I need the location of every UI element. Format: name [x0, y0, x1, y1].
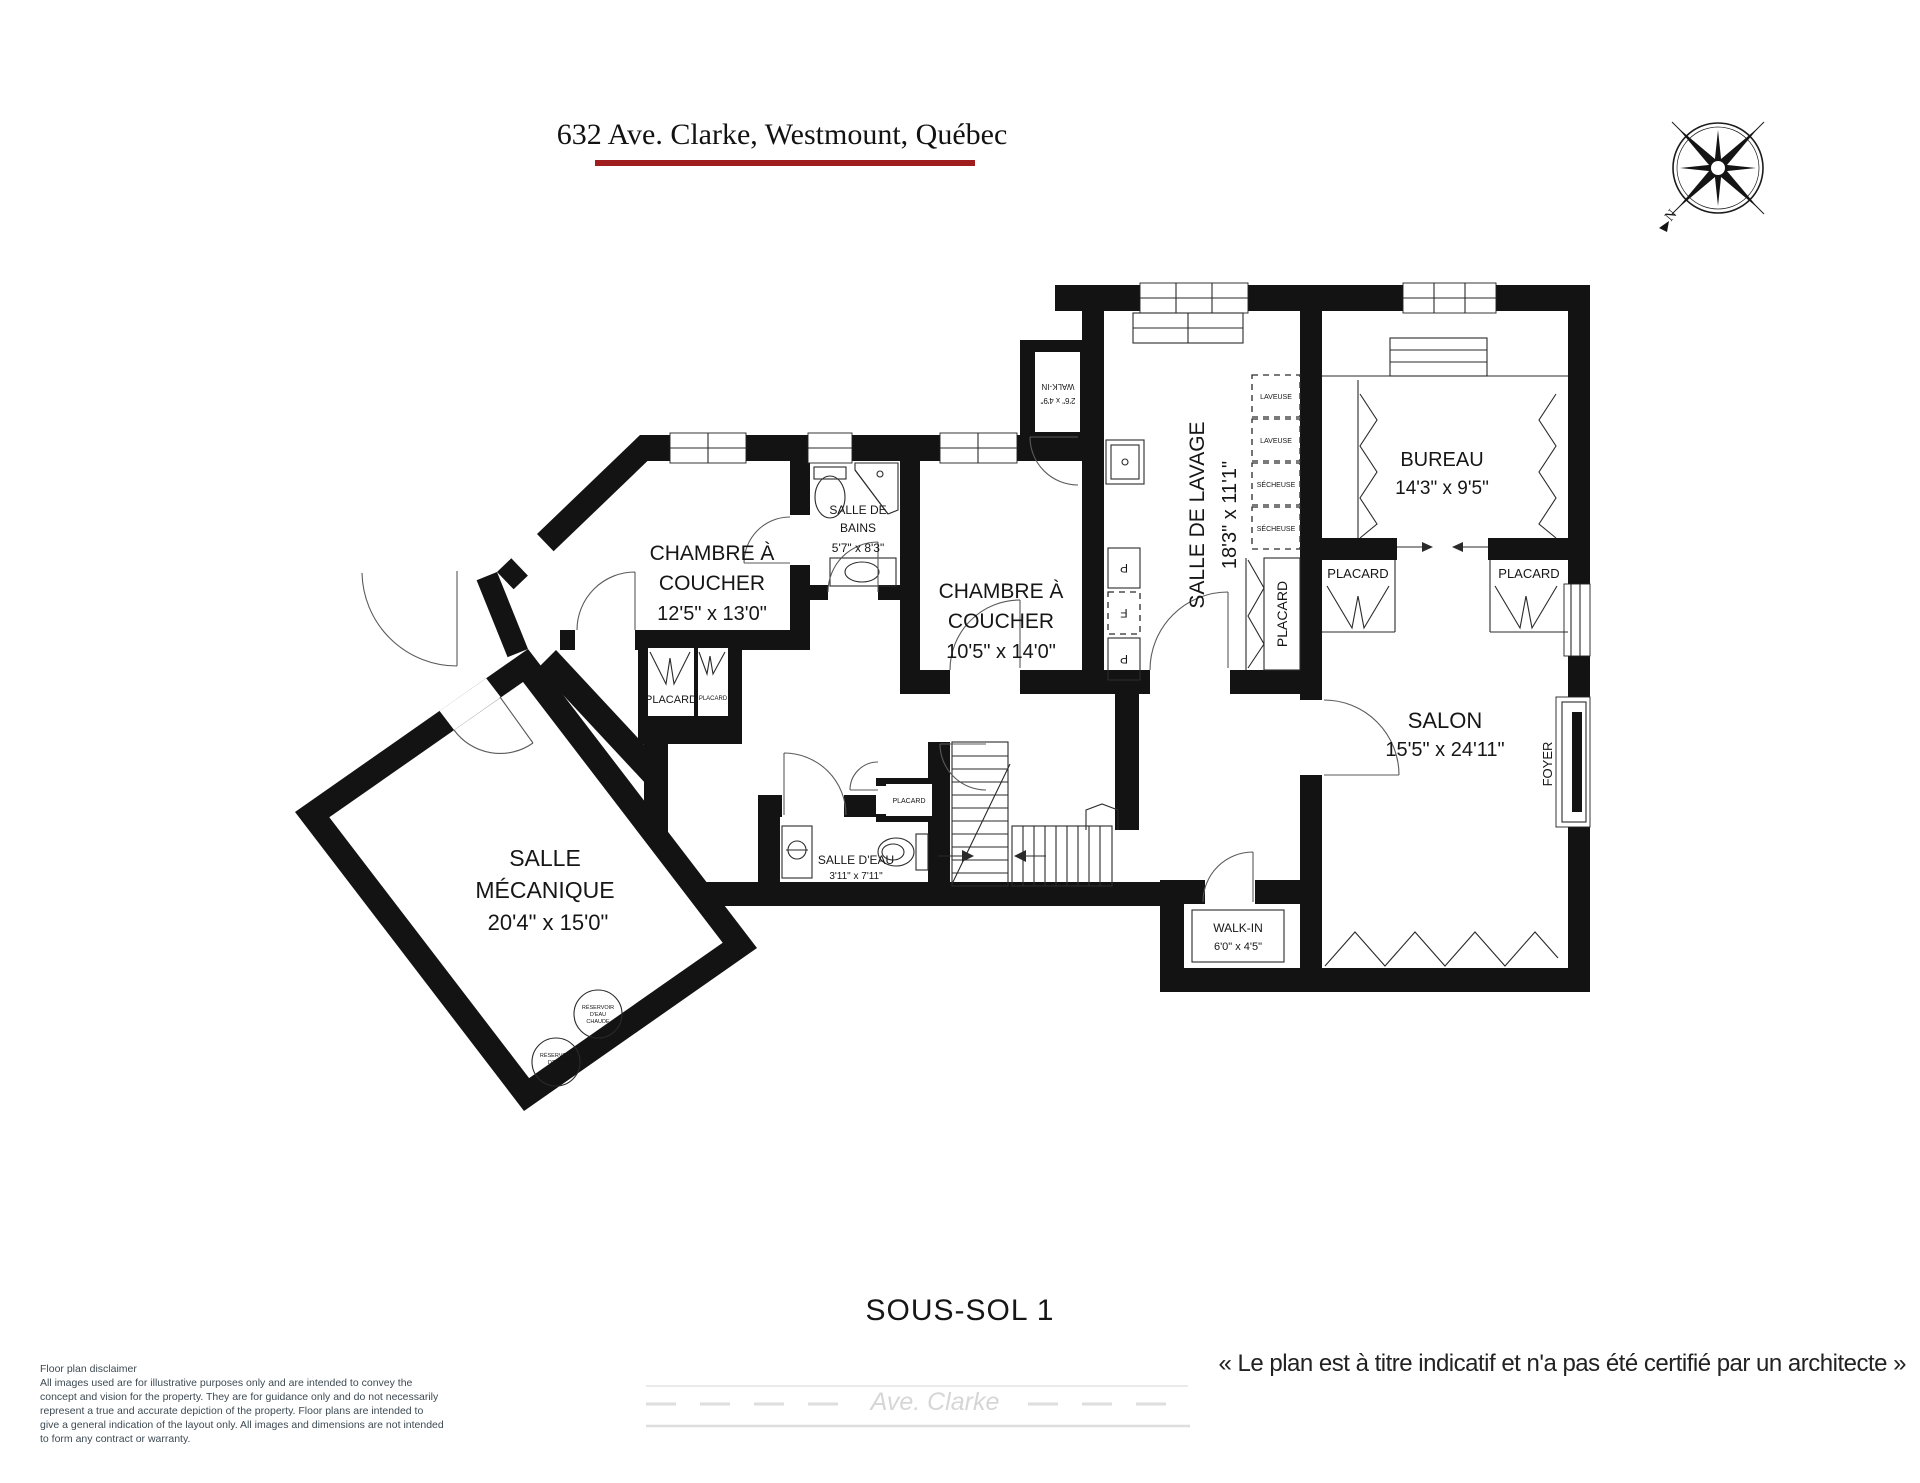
label-secheuse-2: SÉCHEUSE — [1257, 524, 1296, 533]
salon-radiator-zigzag — [1325, 932, 1558, 966]
label-laveuse-1: LAVEUSE — [1260, 394, 1292, 401]
street-label: Ave. Clarke — [700, 1388, 1170, 1417]
laundry-sink — [1106, 440, 1144, 484]
room-walkin-small-dims: 2'6" x 4'9" — [1040, 396, 1075, 405]
label-placard-salon-right: PLACARD — [1498, 566, 1559, 581]
room-salon-name: SALON — [1408, 708, 1483, 733]
room-bains-name1: SALLE DE — [829, 503, 886, 517]
room-mecanique-name2: MÉCANIQUE — [475, 877, 614, 903]
label-placard-bed1: PLACARD — [645, 694, 697, 706]
tank1-line1: RÉSERVOIR — [582, 1004, 614, 1011]
walkin-interior-line — [1192, 910, 1284, 962]
tank1-line2: D'EAU — [590, 1012, 606, 1018]
label-p2: P — [1120, 652, 1128, 666]
appliance-boxes — [1252, 375, 1300, 549]
room-mecanique-dims: 20'4" x 15'0" — [488, 910, 609, 935]
tank1-line3: CHAUDE — [586, 1019, 610, 1025]
room-lavage-dims: 18'3" x 11'1" — [1219, 461, 1241, 569]
label-placard-salon-left: PLACARD — [1327, 566, 1388, 581]
bureau-drape-left — [1358, 380, 1377, 538]
room-bureau-name: BUREAU — [1400, 449, 1483, 471]
placard-strip-laundry — [1246, 558, 1300, 670]
label-placard-laundry: PLACARD — [1274, 581, 1290, 647]
tank2-line3: CHAUDE — [544, 1067, 568, 1073]
floor-plan: CHAMBRE À COUCHER 12'5" x 13'0" SALLE DE… — [0, 0, 1920, 1483]
room-bains-dims: 5'7" x 8'3" — [832, 541, 884, 555]
laundry-window-bay — [1133, 313, 1243, 343]
window-top-1 — [1140, 283, 1248, 313]
room-chambre2-dims: 10'5" x 14'0" — [946, 641, 1056, 663]
window-bedroom1 — [670, 433, 746, 463]
room-walkin-name: WALK-IN — [1213, 921, 1263, 935]
window-salon-right — [1564, 584, 1590, 656]
label-placard-bed1-small: PLACARD — [699, 696, 728, 702]
room-bureau-dims: 14'3" x 9'5" — [1395, 478, 1489, 499]
window-bedroom2 — [940, 433, 1017, 463]
room-lavage-name: SALLE DE LAVAGE — [1186, 421, 1209, 608]
floor-level-label: SOUS-SOL 1 — [0, 1294, 1920, 1328]
room-chambre1-dims: 12'5" x 13'0" — [657, 603, 767, 625]
room-chambre1-name1: CHAMBRE À — [650, 542, 775, 565]
label-laveuse-2: LAVEUSE — [1260, 438, 1292, 445]
label-secheuse-1: SÉCHEUSE — [1257, 480, 1296, 489]
disclaimer-body: All images used are for illustrative pur… — [40, 1376, 444, 1446]
tank2-line2: D'EAU — [548, 1060, 564, 1066]
label-placard-hall: PLACARD — [892, 798, 925, 805]
vanity-icon — [830, 558, 896, 586]
room-bains-name2: BAINS — [840, 521, 876, 535]
room-chambre2-name2: COUCHER — [948, 610, 1054, 633]
label-foyer: FOYER — [1540, 742, 1555, 787]
room-walkin-dims: 6'0" x 4'5" — [1214, 941, 1262, 953]
room-chambre2-name1: CHAMBRE À — [939, 580, 1064, 603]
bureau-drape-right — [1539, 394, 1556, 538]
staircase — [938, 742, 1118, 886]
compass-icon: N — [1659, 122, 1764, 232]
tank2-line1: RÉSERVOIR — [540, 1052, 572, 1059]
room-salon-dims: 15'5" x 24'11" — [1385, 739, 1504, 761]
compass-north-label: N — [1662, 207, 1680, 224]
room-walkin-small-name: WALK-IN — [1041, 382, 1074, 391]
fireplace — [1556, 697, 1590, 827]
bureau-window-bay — [1322, 338, 1568, 376]
disclaimer: Floor plan disclaimer All images used ar… — [40, 1362, 444, 1446]
architect-note: « Le plan est à titre indicatif et n'a p… — [1218, 1350, 1906, 1378]
room-salle-deau-dims: 3'11" x 7'11" — [829, 871, 883, 882]
window-bathroom — [808, 433, 852, 463]
room-chambre1-name2: COUCHER — [659, 572, 765, 595]
window-top-2 — [1403, 283, 1496, 313]
room-salle-deau-name: SALLE D'EAU — [818, 853, 894, 867]
disclaimer-title: Floor plan disclaimer — [40, 1362, 444, 1376]
label-p1: P — [1120, 561, 1128, 575]
powder-sink-icon — [782, 826, 812, 878]
room-mecanique-name1: SALLE — [509, 845, 581, 871]
label-f: F — [1120, 606, 1127, 620]
